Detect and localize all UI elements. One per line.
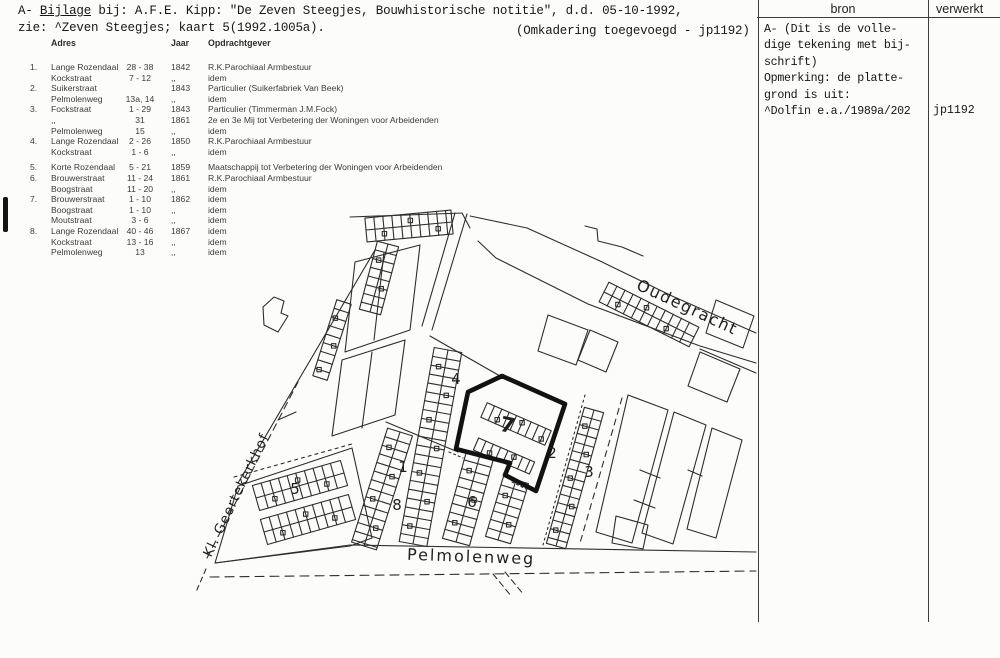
map-area-number-3: 3 [584,463,594,481]
map-area-number-5: 5 [290,480,300,498]
map-area-number-2: 2 [547,444,557,462]
verwerkt-value: jp1192 [933,104,975,117]
sidebar-header-rule [757,17,1000,18]
bron-note: A- (Dit is de volle-dige tekening met bi… [764,22,932,120]
pentagon-plot [263,297,288,332]
column-header-bron: bron [758,2,928,16]
sidebar-left-rule [758,0,759,622]
map-labels: OudegrachtKl. GeertekerkhofPelmolenweg12… [200,275,741,568]
bron-note-line: Opmerking: de platte- [764,71,932,87]
map-area-number-7: 7 [498,412,517,439]
bron-note-line: dige tekening met bij- [764,38,932,54]
bron-note-line: schrift) [764,55,932,71]
bron-note-line: A- (Dit is de volle- [764,22,932,38]
street-label-oudegracht: Oudegracht [634,275,741,338]
bron-note-line: ^Dolfin e.a./1989a/202 [764,104,932,120]
map-area-number-1: 1 [398,458,408,476]
street-label-kl-geertekerkhof: Kl. Geertekerkhof [200,431,273,560]
column-header-verwerkt: verwerkt [936,2,983,16]
map-area-number-8: 8 [392,496,402,514]
map-area-number-4: 4 [451,370,461,388]
street-label-pelmolenweg: Pelmolenweg [407,545,536,568]
map-area-number-6: 6 [467,493,477,511]
bron-note-line: grond is uit: [764,88,932,104]
canal-oudegracht [350,213,756,373]
